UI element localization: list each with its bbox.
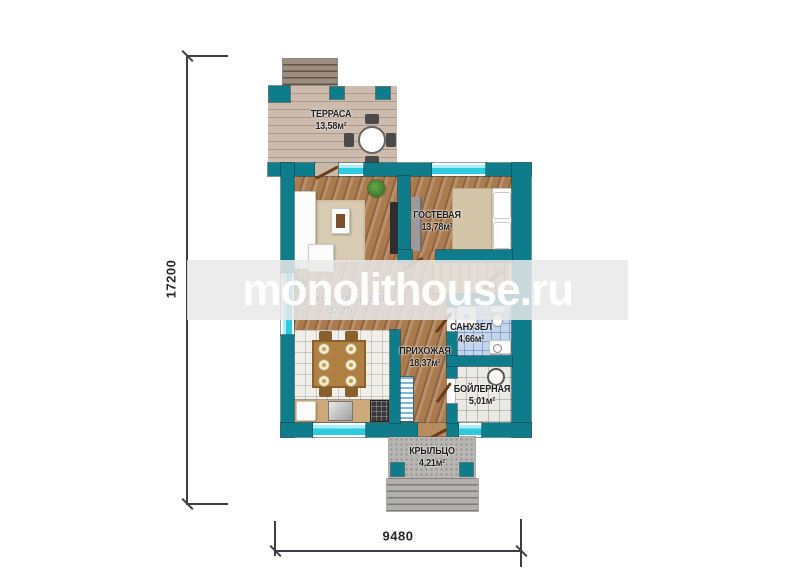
- terrace-round-table: [358, 126, 386, 154]
- porch-post: [460, 463, 473, 476]
- place-setting: [345, 375, 357, 387]
- dining-chair: [319, 387, 332, 397]
- room-label-guest: ГОСТЕВАЯ 13,78м²: [409, 209, 464, 234]
- room-name: САНУЗЕЛ: [450, 321, 492, 333]
- pillow: [493, 192, 511, 219]
- room-area: 13,58м²: [311, 120, 352, 132]
- dimension-extension: [186, 55, 228, 57]
- room-name: ПРИХОЖАЯ: [399, 345, 451, 357]
- dimension-extension: [520, 519, 522, 567]
- room-area: 4,66м²: [450, 333, 492, 345]
- window: [313, 423, 366, 437]
- room-name: БОЙЛЕРНАЯ: [454, 383, 510, 395]
- room-name: КРЫЛЬЦО: [409, 445, 455, 457]
- exterior-wall: [447, 423, 459, 437]
- exterior-wall: [281, 163, 294, 273]
- window: [339, 163, 364, 176]
- interior-wall: [447, 356, 512, 366]
- room-label-terrace: ТЕРРАСА 13,58м²: [307, 108, 354, 133]
- porch-post: [391, 463, 404, 476]
- place-setting: [345, 343, 357, 355]
- floor-plan-canvas: 17200 9480: [0, 0, 794, 576]
- interior-wall: [398, 176, 410, 252]
- pillow: [493, 222, 511, 249]
- room-label-hallway: ПРИХОЖАЯ 18,37м²: [395, 345, 455, 370]
- terrace-chair: [365, 114, 379, 124]
- width-dimension-label: 9480: [383, 529, 414, 544]
- exterior-wall: [364, 163, 432, 176]
- coffee-table-top: [336, 214, 345, 228]
- room-label-bathroom: САНУЗЕЛ 4,66м²: [447, 321, 496, 346]
- horizontal-dimension-line: [274, 550, 522, 552]
- room-area: 5,01м²: [454, 395, 510, 407]
- window: [459, 423, 482, 437]
- stove: [370, 400, 389, 422]
- place-setting: [318, 343, 330, 355]
- place-setting: [345, 359, 357, 371]
- kitchen-sink: [328, 401, 353, 421]
- fridge: [296, 401, 316, 421]
- watermark-text: monolithouse.ru: [242, 264, 573, 316]
- tv-unit: [390, 202, 398, 254]
- watermark-band: monolithouse.ru: [187, 260, 628, 320]
- terrace-chair: [344, 133, 354, 147]
- room-area: 18,37м²: [399, 357, 451, 369]
- room-name: ГОСТЕВАЯ: [413, 209, 461, 221]
- exterior-wall: [366, 423, 418, 437]
- terrace-post: [376, 87, 390, 99]
- window: [432, 163, 486, 176]
- room-label-porch: КРЫЛЬЦО 4,21м²: [405, 445, 458, 470]
- exterior-wall: [281, 335, 294, 437]
- terrace-post: [330, 87, 344, 99]
- interior-wall: [390, 330, 400, 423]
- place-setting: [318, 375, 330, 387]
- dimension-extension: [186, 503, 228, 505]
- room-area: 13,78м²: [413, 221, 461, 233]
- place-setting: [318, 359, 330, 371]
- room-area: 4,21м²: [409, 457, 455, 469]
- coffee-table: [331, 208, 350, 234]
- porch-steps: [387, 479, 478, 511]
- terrace-post: [269, 86, 290, 102]
- dining-chair: [345, 387, 358, 397]
- exterior-wall: [281, 423, 313, 437]
- terrace-chair: [386, 133, 396, 147]
- room-label-boiler: БОЙЛЕРНАЯ 5,01м²: [449, 383, 515, 408]
- plant-icon: [368, 180, 385, 197]
- exterior-wall: [482, 423, 531, 437]
- height-dimension-label: 17200: [164, 260, 179, 299]
- room-name: ТЕРРАСА: [311, 108, 352, 120]
- radiator: [399, 376, 414, 422]
- terrace-steps: [283, 59, 337, 87]
